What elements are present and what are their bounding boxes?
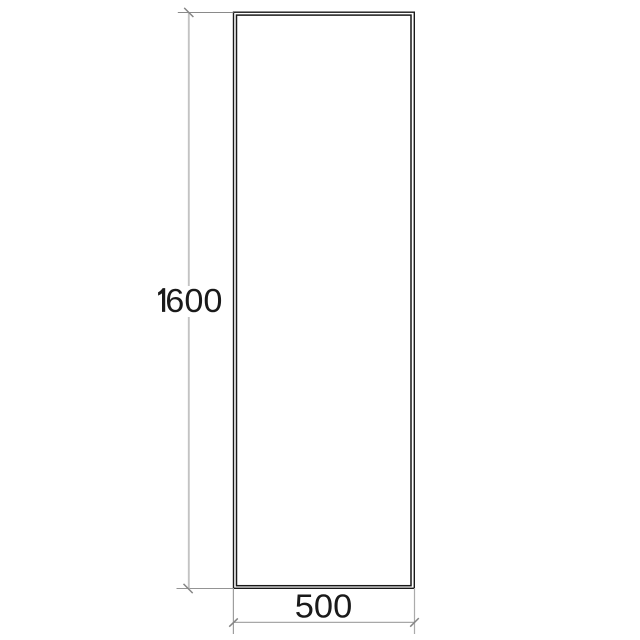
svg-text:600: 600 — [165, 283, 222, 320]
svg-text:500: 500 — [295, 589, 353, 626]
